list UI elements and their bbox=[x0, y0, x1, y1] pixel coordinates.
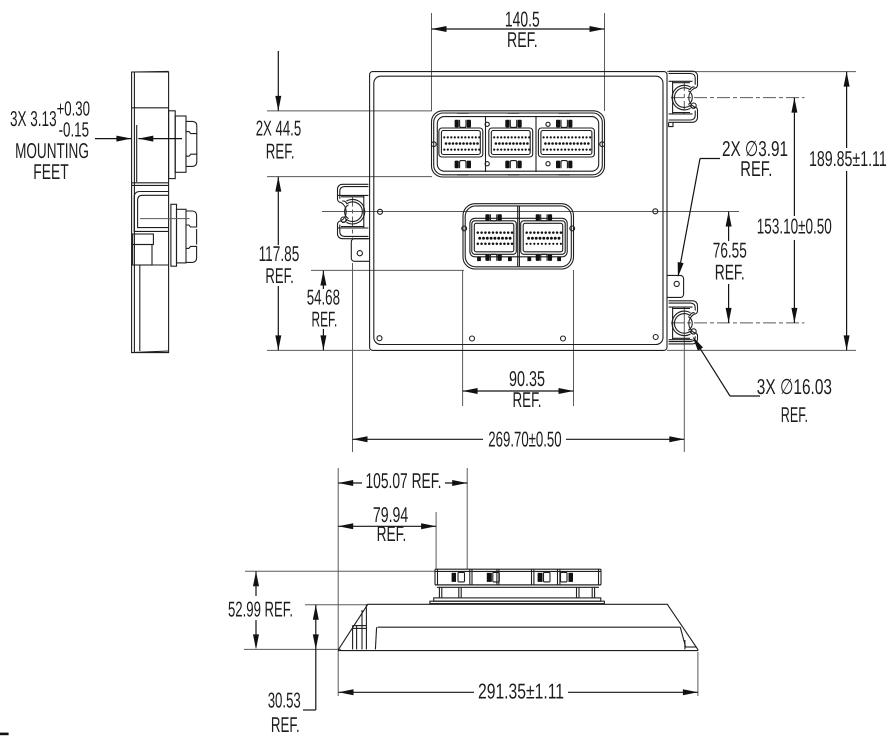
svg-text:+0.30: +0.30 bbox=[57, 97, 90, 120]
svg-text:117.85: 117.85 bbox=[259, 242, 300, 266]
svg-text:269.70±0.50: 269.70±0.50 bbox=[488, 427, 561, 451]
svg-text:REF.: REF. bbox=[507, 28, 538, 52]
svg-text:189.85±1.11: 189.85±1.11 bbox=[809, 147, 887, 171]
svg-text:3X ∅16.03: 3X ∅16.03 bbox=[757, 375, 832, 399]
svg-text:3X 3.13: 3X 3.13 bbox=[10, 107, 57, 131]
svg-text:76.55: 76.55 bbox=[713, 239, 747, 263]
svg-text:REF.: REF. bbox=[781, 403, 808, 427]
svg-text:FEET: FEET bbox=[33, 160, 68, 184]
svg-text:54.68: 54.68 bbox=[307, 285, 340, 309]
svg-text:30.53: 30.53 bbox=[268, 689, 301, 713]
svg-text:REF.: REF. bbox=[312, 308, 338, 332]
svg-text:REF.: REF. bbox=[266, 140, 295, 164]
svg-text:105.07 REF.: 105.07 REF. bbox=[366, 469, 442, 493]
svg-text:REF.: REF. bbox=[740, 157, 772, 181]
svg-text:153.10±0.50: 153.10±0.50 bbox=[757, 215, 832, 239]
svg-text:REF.: REF. bbox=[513, 388, 542, 412]
svg-text:291.35±1.11: 291.35±1.11 bbox=[478, 680, 564, 704]
svg-text:REF.: REF. bbox=[715, 260, 745, 284]
svg-text:REF.: REF. bbox=[271, 713, 300, 737]
svg-text:52.99 REF.: 52.99 REF. bbox=[228, 598, 293, 622]
svg-text:REF.: REF. bbox=[265, 264, 293, 288]
svg-text:2X 44.5: 2X 44.5 bbox=[256, 116, 302, 140]
svg-text:REF.: REF. bbox=[377, 522, 407, 546]
